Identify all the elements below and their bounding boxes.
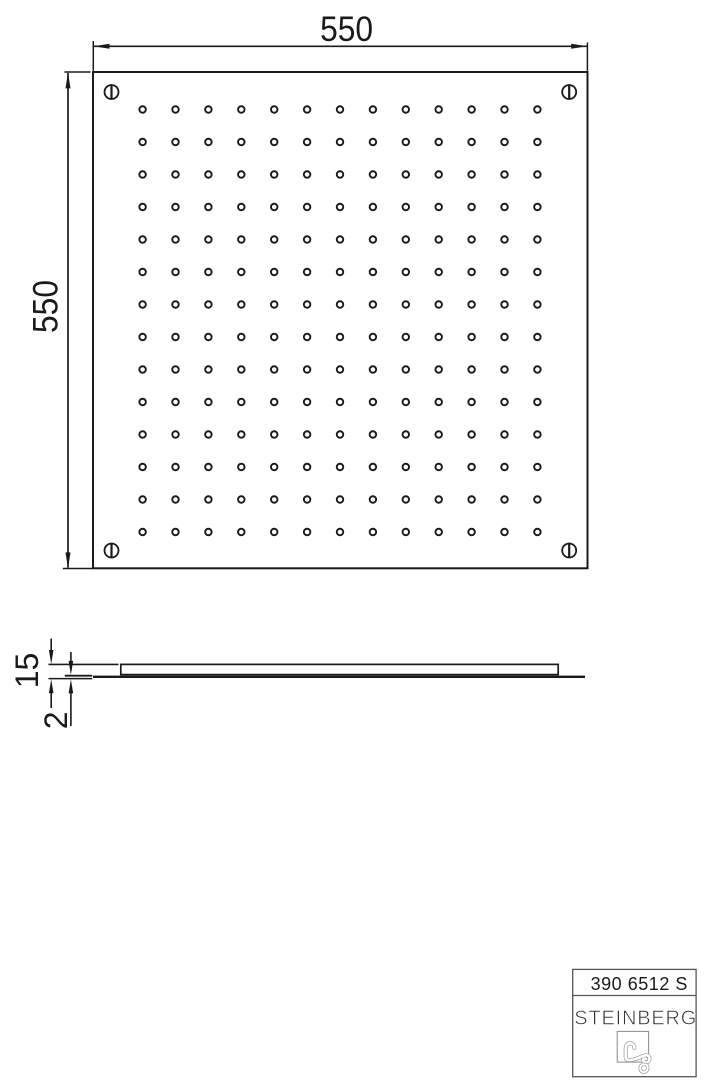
svg-text:15: 15 [9,653,45,689]
svg-text:390 6512 S: 390 6512 S [591,974,688,994]
svg-text:2: 2 [38,711,74,729]
svg-text:550: 550 [27,280,66,333]
svg-text:STEINBERG: STEINBERG [574,1007,696,1029]
svg-text:550: 550 [320,10,373,49]
